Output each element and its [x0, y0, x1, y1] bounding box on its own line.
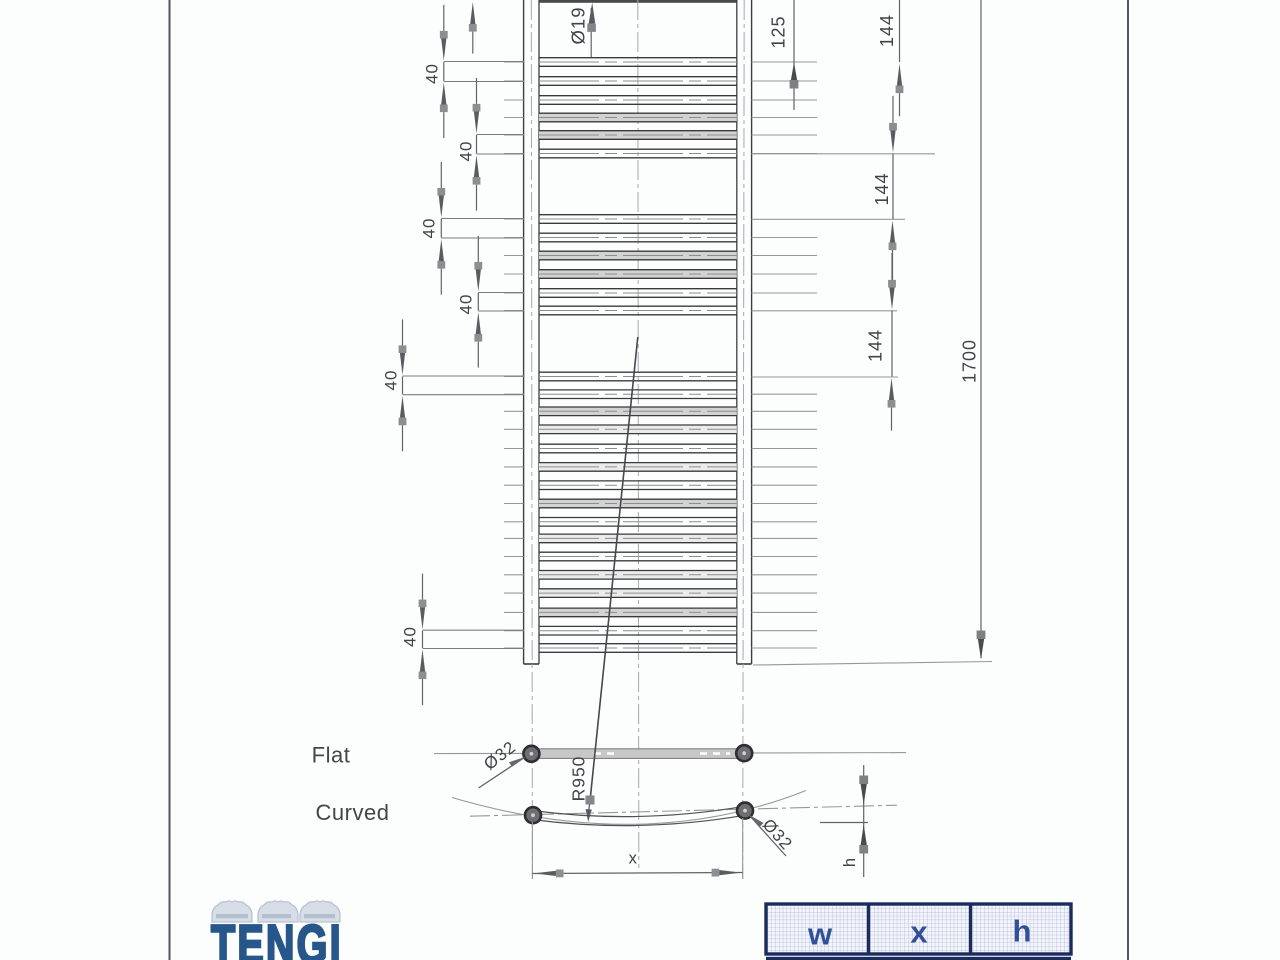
svg-text:144: 144: [866, 329, 886, 362]
svg-text:Ø19: Ø19: [567, 7, 588, 45]
svg-text:144: 144: [872, 172, 892, 205]
svg-text:40: 40: [457, 141, 476, 162]
svg-text:40: 40: [456, 294, 475, 315]
svg-text:h: h: [1013, 914, 1032, 949]
svg-text:1700: 1700: [960, 339, 980, 383]
svg-text:40: 40: [419, 218, 438, 239]
svg-text:40: 40: [401, 626, 420, 647]
svg-text:40: 40: [381, 370, 400, 391]
svg-text:Flat: Flat: [312, 742, 351, 767]
svg-text:x: x: [910, 915, 928, 950]
svg-text:TENGI: TENGI: [211, 915, 343, 960]
svg-text:w: w: [807, 917, 833, 952]
svg-text:R950: R950: [569, 756, 589, 802]
svg-text:144: 144: [877, 14, 897, 47]
svg-text:x: x: [629, 850, 638, 868]
svg-text:h: h: [841, 857, 859, 867]
svg-text:40: 40: [423, 63, 442, 84]
svg-text:125: 125: [768, 15, 788, 48]
svg-text:Curved: Curved: [316, 800, 390, 825]
